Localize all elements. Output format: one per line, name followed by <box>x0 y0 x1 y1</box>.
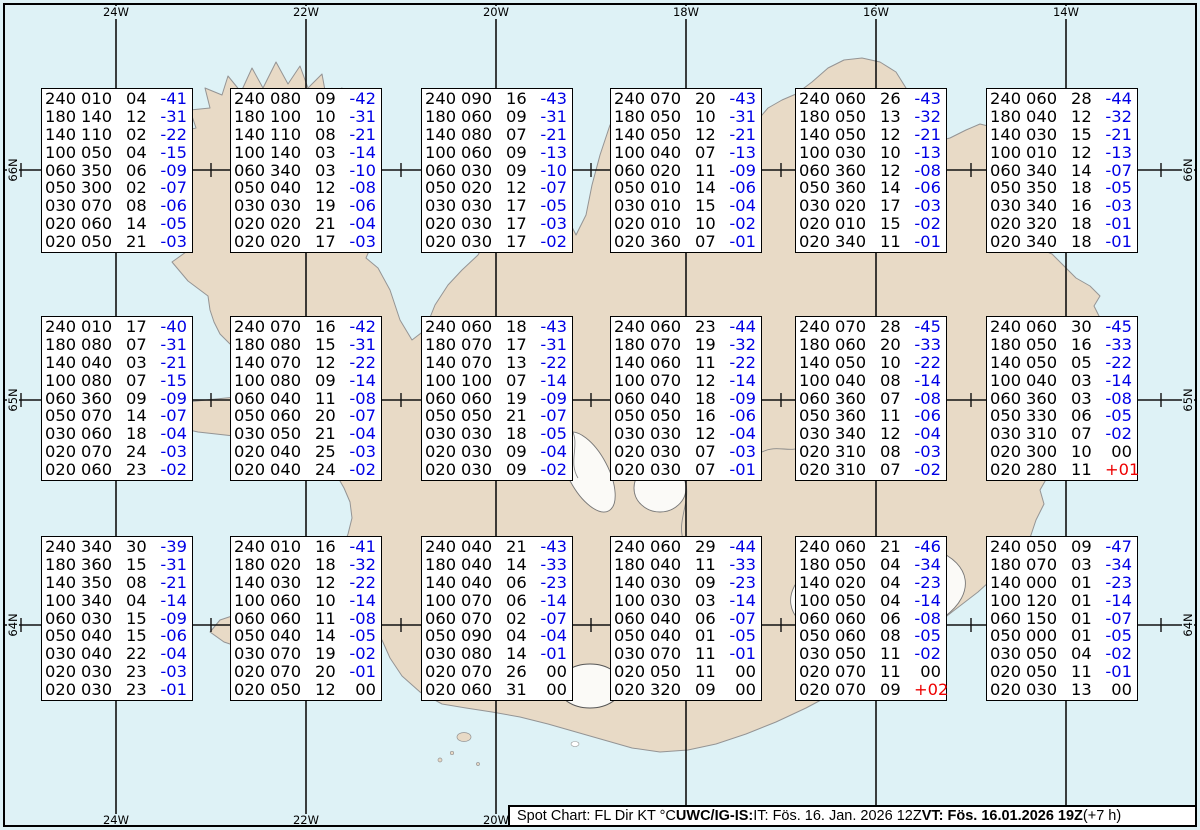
temp-value: -33 <box>914 336 941 354</box>
dir-value: 070 <box>461 610 506 628</box>
spot-row: 18005010-31 <box>614 108 756 126</box>
dir-value: 010 <box>1026 144 1071 162</box>
dir-value: 110 <box>270 126 315 144</box>
temp-value: -14 <box>729 372 756 390</box>
dir-value: 360 <box>835 162 880 180</box>
lat-label-left: 65N <box>7 386 19 413</box>
temp-value: -02 <box>160 461 187 479</box>
spot-row: 06002011-09 <box>614 162 756 180</box>
kt-value: 04 <box>506 627 540 645</box>
kt-value: 09 <box>315 90 349 108</box>
dir-value: 030 <box>650 425 695 443</box>
temp-value: -34 <box>914 556 941 574</box>
temp-value: -08 <box>914 390 941 408</box>
spot-box: 24006021-4618005004-3414002004-231000500… <box>795 536 947 701</box>
dir-value: 070 <box>270 318 315 336</box>
temp-value: -01 <box>1105 233 1132 251</box>
kt-value: 09 <box>506 443 540 461</box>
kt-value: 12 <box>126 108 160 126</box>
dir-value: 070 <box>461 354 506 372</box>
kt-value: 22 <box>126 645 160 663</box>
fl-value: 020 <box>234 233 270 251</box>
dir-value: 360 <box>835 390 880 408</box>
temp-value: -10 <box>349 162 376 180</box>
kt-value: 16 <box>695 407 729 425</box>
temp-value: -21 <box>914 126 941 144</box>
fl-value: 140 <box>614 574 650 592</box>
kt-value: 03 <box>1071 372 1105 390</box>
spot-row: 06003009-10 <box>425 162 567 180</box>
kt-value: 04 <box>126 90 160 108</box>
fl-value: 020 <box>234 215 270 233</box>
spot-row: 10004003-14 <box>990 372 1132 390</box>
kt-value: 10 <box>315 592 349 610</box>
kt-value: 17 <box>315 233 349 251</box>
spot-row: 18006009-31 <box>425 108 567 126</box>
temp-value: -23 <box>540 574 567 592</box>
temp-value: -45 <box>914 318 941 336</box>
dir-value: 030 <box>461 233 506 251</box>
fl-value: 180 <box>799 336 835 354</box>
temp-value: -05 <box>1105 407 1132 425</box>
kt-value: 16 <box>1071 336 1105 354</box>
fl-value: 020 <box>45 681 81 699</box>
dir-value: 040 <box>270 390 315 408</box>
kt-value: 01 <box>1071 610 1105 628</box>
kt-value: 18 <box>126 425 160 443</box>
dir-value: 040 <box>650 144 695 162</box>
fl-value: 020 <box>799 663 835 681</box>
kt-value: 24 <box>126 443 160 461</box>
temp-value: -07 <box>1105 610 1132 628</box>
dir-value: 060 <box>650 354 695 372</box>
temp-value: -21 <box>160 354 187 372</box>
fl-value: 060 <box>234 610 270 628</box>
dir-value: 360 <box>81 390 126 408</box>
spot-row: 03034012-04 <box>799 425 941 443</box>
lat-label-right: 66N <box>1182 156 1194 183</box>
spot-row: 05004014-05 <box>234 627 376 645</box>
fl-value: 030 <box>799 197 835 215</box>
spot-row: 18014012-31 <box>45 108 187 126</box>
fl-value: 140 <box>799 126 835 144</box>
temp-value: -42 <box>349 90 376 108</box>
kt-value: 03 <box>695 592 729 610</box>
temp-value: -02 <box>1105 425 1132 443</box>
dir-value: 310 <box>835 461 880 479</box>
temp-value: -08 <box>914 162 941 180</box>
kt-value: 05 <box>1071 354 1105 372</box>
fl-value: 060 <box>425 162 461 180</box>
kt-value: 02 <box>506 610 540 628</box>
spot-row: 02006023-02 <box>45 461 187 479</box>
dir-value: 040 <box>461 574 506 592</box>
temp-value: -41 <box>160 90 187 108</box>
fl-value: 140 <box>234 126 270 144</box>
kt-value: 14 <box>126 215 160 233</box>
kt-value: 07 <box>880 461 914 479</box>
temp-value: -23 <box>729 574 756 592</box>
dir-value: 030 <box>650 443 695 461</box>
spot-box: 24001016-4118002018-3214003012-221000601… <box>230 536 382 701</box>
fl-value: 060 <box>45 390 81 408</box>
fl-value: 050 <box>234 179 270 197</box>
kt-value: 30 <box>1071 318 1105 336</box>
dir-value: 060 <box>461 390 506 408</box>
dir-value: 340 <box>81 592 126 610</box>
spot-row: 02003023-03 <box>45 663 187 681</box>
spot-row: 03003019-06 <box>234 197 376 215</box>
temp-value: -31 <box>540 336 567 354</box>
kt-value: 01 <box>1071 627 1105 645</box>
temp-value: -08 <box>349 390 376 408</box>
kt-value: 01 <box>1071 574 1105 592</box>
fl-value: 050 <box>425 627 461 645</box>
fl-value: 020 <box>799 461 835 479</box>
fl-value: 180 <box>614 336 650 354</box>
temp-value: -10 <box>540 162 567 180</box>
kt-value: 03 <box>126 354 160 372</box>
spot-box: 24007020-4318005010-3114005012-211000400… <box>610 88 762 253</box>
dir-value: 050 <box>1026 336 1071 354</box>
kt-value: 26 <box>880 90 914 108</box>
dir-value: 040 <box>81 627 126 645</box>
spot-row: 0200501200 <box>234 681 376 699</box>
spot-row: 02003009-02 <box>425 461 567 479</box>
temp-value: -04 <box>349 425 376 443</box>
kt-value: 14 <box>695 179 729 197</box>
kt-value: 08 <box>315 126 349 144</box>
kt-value: 03 <box>1071 556 1105 574</box>
temp-value: -03 <box>160 663 187 681</box>
temp-value: -23 <box>914 574 941 592</box>
temp-value: -46 <box>914 538 941 556</box>
temp-value: -09 <box>160 610 187 628</box>
dir-value: 150 <box>1026 610 1071 628</box>
temp-value: -05 <box>729 627 756 645</box>
kt-value: 14 <box>506 556 540 574</box>
spot-row: 03007008-06 <box>45 197 187 215</box>
dir-value: 050 <box>650 126 695 144</box>
temp-value: -05 <box>540 197 567 215</box>
temp-value: -04 <box>160 645 187 663</box>
kt-value: 08 <box>880 627 914 645</box>
spot-row: 14005010-22 <box>799 354 941 372</box>
dir-value: 050 <box>650 407 695 425</box>
dir-value: 070 <box>270 663 315 681</box>
spot-row: 05036014-06 <box>799 179 941 197</box>
fl-value: 060 <box>990 390 1026 408</box>
dir-value: 030 <box>81 610 126 628</box>
spot-row: 05006020-07 <box>234 407 376 425</box>
temp-value: -03 <box>540 215 567 233</box>
fl-value: 060 <box>234 390 270 408</box>
fl-value: 060 <box>45 610 81 628</box>
temp-value: -14 <box>160 592 187 610</box>
fl-value: 020 <box>614 233 650 251</box>
spot-row: 14003009-23 <box>614 574 756 592</box>
kt-value: 09 <box>506 162 540 180</box>
fl-value: 180 <box>990 336 1026 354</box>
kt-value: 12 <box>695 372 729 390</box>
kt-value: 10 <box>880 144 914 162</box>
temp-value: -03 <box>160 443 187 461</box>
fl-value: 180 <box>234 108 270 126</box>
kt-value: 06 <box>1071 407 1105 425</box>
lon-label-bottom: 24W <box>101 814 131 827</box>
spot-box: 24006023-4418007019-3214006011-221000701… <box>610 316 762 481</box>
spot-row: 10003010-13 <box>799 144 941 162</box>
spot-row: 14006011-22 <box>614 354 756 372</box>
kt-value: 12 <box>315 179 349 197</box>
spot-row: 06006006-08 <box>799 610 941 628</box>
fl-value: 020 <box>45 215 81 233</box>
temp-value: -14 <box>349 144 376 162</box>
kt-value: 16 <box>1071 197 1105 215</box>
temp-value: -33 <box>729 556 756 574</box>
spot-row: 02034011-01 <box>799 233 941 251</box>
temp-value: -31 <box>160 336 187 354</box>
fl-value: 030 <box>45 425 81 443</box>
temp-value: -09 <box>160 162 187 180</box>
dir-value: 030 <box>461 215 506 233</box>
dir-value: 070 <box>1026 556 1071 574</box>
spot-row: 03006018-04 <box>45 425 187 443</box>
spot-row: 02036007-01 <box>614 233 756 251</box>
dir-value: 090 <box>461 90 506 108</box>
kt-value: 02 <box>126 179 160 197</box>
dir-value: 340 <box>835 425 880 443</box>
temp-value: -09 <box>540 390 567 408</box>
fl-value: 060 <box>45 162 81 180</box>
fl-value: 030 <box>425 645 461 663</box>
spot-row: 05005016-06 <box>614 407 756 425</box>
temp-value: -31 <box>160 108 187 126</box>
spot-row: 03005004-02 <box>990 645 1132 663</box>
dir-value: 010 <box>650 197 695 215</box>
temp-value: -06 <box>729 407 756 425</box>
temp-value: -07 <box>540 610 567 628</box>
fl-value: 240 <box>45 538 81 556</box>
fl-value: 020 <box>990 681 1026 699</box>
fl-value: 100 <box>45 144 81 162</box>
spot-row: 03005011-02 <box>799 645 941 663</box>
temp-value: 00 <box>1105 681 1132 699</box>
dir-value: 040 <box>270 627 315 645</box>
spot-row: 24006029-44 <box>614 538 756 556</box>
dir-value: 080 <box>270 372 315 390</box>
spot-row: 05004015-06 <box>45 627 187 645</box>
spot-row: 24001016-41 <box>234 538 376 556</box>
kt-value: 06 <box>126 162 160 180</box>
lon-label-top: 24W <box>101 6 131 19</box>
spot-row: 02003009-04 <box>425 443 567 461</box>
spot-row: 02002017-03 <box>234 233 376 251</box>
kt-value: 11 <box>695 645 729 663</box>
dir-value: 070 <box>270 354 315 372</box>
dir-value: 030 <box>1026 126 1071 144</box>
kt-value: 08 <box>126 197 160 215</box>
temp-value: -45 <box>1105 318 1132 336</box>
temp-value: -09 <box>729 390 756 408</box>
fl-value: 020 <box>990 461 1026 479</box>
temp-value: -31 <box>160 556 187 574</box>
dir-value: 350 <box>1026 179 1071 197</box>
dir-value: 050 <box>650 663 695 681</box>
dir-value: 060 <box>461 144 506 162</box>
spot-row: 06034014-07 <box>990 162 1132 180</box>
fl-value: 100 <box>425 144 461 162</box>
temp-value: -08 <box>349 610 376 628</box>
kt-value: 15 <box>695 197 729 215</box>
kt-value: 06 <box>506 592 540 610</box>
kt-value: 03 <box>315 144 349 162</box>
fl-value: 060 <box>425 390 461 408</box>
kt-value: 14 <box>315 627 349 645</box>
kt-value: 29 <box>695 538 729 556</box>
temp-value: -05 <box>160 215 187 233</box>
spot-row: 02005021-03 <box>45 233 187 251</box>
fl-value: 100 <box>614 372 650 390</box>
dir-value: 060 <box>461 318 506 336</box>
dir-value: 030 <box>270 574 315 592</box>
dir-value: 070 <box>650 336 695 354</box>
spot-box: 24007016-4218008015-3114007012-221000800… <box>230 316 382 481</box>
temp-value: +01 <box>1105 461 1139 479</box>
fl-value: 020 <box>425 233 461 251</box>
temp-value: -23 <box>1105 574 1132 592</box>
lat-label-left: 66N <box>7 156 19 183</box>
temp-value: -13 <box>729 144 756 162</box>
temp-value: +02 <box>914 681 948 699</box>
kt-value: 07 <box>695 443 729 461</box>
spot-box: 24006029-4418004011-3314003009-231000300… <box>610 536 762 701</box>
kt-value: 06 <box>880 610 914 628</box>
dir-value: 080 <box>270 336 315 354</box>
temp-value: -06 <box>160 627 187 645</box>
spot-row: 02007024-03 <box>45 443 187 461</box>
kt-value: 07 <box>506 372 540 390</box>
fl-value: 100 <box>425 372 461 390</box>
dir-value: 030 <box>81 681 126 699</box>
fl-value: 020 <box>425 215 461 233</box>
kt-value: 17 <box>506 215 540 233</box>
temp-value: -06 <box>729 179 756 197</box>
spot-row: 24006023-44 <box>614 318 756 336</box>
spot-row: 0200301300 <box>990 681 1132 699</box>
temp-value: -04 <box>729 197 756 215</box>
spot-row: 05005021-07 <box>425 407 567 425</box>
kt-value: 13 <box>506 354 540 372</box>
dir-value: 350 <box>81 162 126 180</box>
temp-value: -44 <box>729 318 756 336</box>
spot-row: 10006010-14 <box>234 592 376 610</box>
kt-value: 19 <box>315 197 349 215</box>
spot-row: 02032018-01 <box>990 215 1132 233</box>
temp-value: -32 <box>914 108 941 126</box>
dir-value: 040 <box>270 461 315 479</box>
fl-value: 030 <box>45 645 81 663</box>
kt-value: 23 <box>695 318 729 336</box>
spot-row: 14003015-21 <box>990 126 1132 144</box>
temp-value: -08 <box>1105 390 1132 408</box>
dir-value: 050 <box>1026 354 1071 372</box>
dir-value: 050 <box>1026 538 1071 556</box>
kt-value: 17 <box>880 197 914 215</box>
fl-value: 140 <box>425 354 461 372</box>
temp-value: -06 <box>914 179 941 197</box>
fl-value: 180 <box>234 556 270 574</box>
spot-row: 02004025-03 <box>234 443 376 461</box>
spot-row: 24006021-46 <box>799 538 941 556</box>
fl-value: 030 <box>234 197 270 215</box>
spot-row: 03005021-04 <box>234 425 376 443</box>
temp-value: -01 <box>349 663 376 681</box>
kt-value: 23 <box>126 681 160 699</box>
fl-value: 100 <box>45 592 81 610</box>
info-bar-segment: Spot Chart: FL Dir KT °C <box>517 808 676 824</box>
kt-value: 11 <box>880 645 914 663</box>
spot-row: 14007012-22 <box>234 354 376 372</box>
kt-value: 16 <box>315 318 349 336</box>
spot-row: 18008015-31 <box>234 336 376 354</box>
spot-row: 03031007-02 <box>990 425 1132 443</box>
kt-value: 08 <box>126 574 160 592</box>
spot-row: 10004008-14 <box>799 372 941 390</box>
spot-row: 02003017-02 <box>425 233 567 251</box>
fl-value: 240 <box>990 90 1026 108</box>
kt-value: 15 <box>126 556 160 574</box>
temp-value: -32 <box>729 336 756 354</box>
temp-value: -03 <box>349 233 376 251</box>
temp-value: -22 <box>349 574 376 592</box>
kt-value: 16 <box>315 538 349 556</box>
temp-value: -02 <box>729 215 756 233</box>
kt-value: 28 <box>880 318 914 336</box>
spot-row: 05036011-06 <box>799 407 941 425</box>
kt-value: 12 <box>1071 108 1105 126</box>
temp-value: -07 <box>729 610 756 628</box>
fl-value: 050 <box>990 627 1026 645</box>
dir-value: 060 <box>461 681 506 699</box>
fl-value: 240 <box>614 538 650 556</box>
fl-value: 030 <box>990 425 1026 443</box>
temp-value: -08 <box>914 610 941 628</box>
dir-value: 340 <box>1026 162 1071 180</box>
fl-value: 240 <box>990 318 1026 336</box>
temp-value: -07 <box>160 407 187 425</box>
dir-value: 040 <box>650 610 695 628</box>
dir-value: 010 <box>835 215 880 233</box>
temp-value: -22 <box>349 354 376 372</box>
fl-value: 030 <box>799 425 835 443</box>
temp-value: -43 <box>540 538 567 556</box>
spot-row: 18036015-31 <box>45 556 187 574</box>
spot-row: 05001014-06 <box>614 179 756 197</box>
fl-value: 050 <box>799 179 835 197</box>
dir-value: 060 <box>270 610 315 628</box>
spot-row: 14035008-21 <box>45 574 187 592</box>
fl-value: 050 <box>614 407 650 425</box>
kt-value: 17 <box>506 233 540 251</box>
dir-value: 360 <box>650 233 695 251</box>
temp-value: -02 <box>349 461 376 479</box>
temp-value: -43 <box>540 318 567 336</box>
kt-value: 03 <box>1071 390 1105 408</box>
temp-value: -31 <box>540 108 567 126</box>
fl-value: 020 <box>990 663 1026 681</box>
dir-value: 030 <box>835 144 880 162</box>
